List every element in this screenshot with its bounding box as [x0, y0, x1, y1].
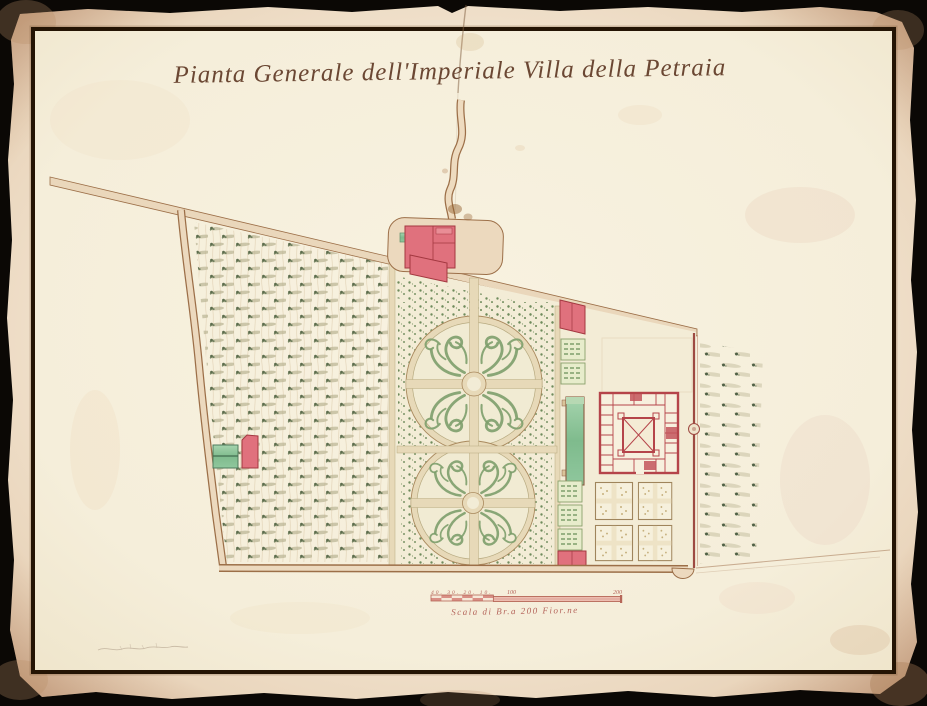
east-grove-trees: [700, 342, 763, 564]
orchard-trees: [194, 222, 388, 562]
garden-building-north: [560, 300, 585, 334]
villa-entrance-gap: [636, 470, 644, 474]
garden-plot: [558, 529, 582, 550]
villa-petraia-plan: Pianta Generale dell'Imperiale Villa del…: [0, 0, 927, 706]
scale-mid-label: 100: [507, 590, 516, 596]
orchard-field: [194, 222, 388, 562]
garden-plot: [561, 339, 585, 360]
garden-plot: [561, 363, 585, 384]
garden-plot: [558, 505, 582, 526]
scanned-map-photo: Pianta Generale dell'Imperiale Villa del…: [0, 0, 927, 706]
farm-building: [242, 435, 258, 468]
villa-plan: [600, 393, 678, 474]
scale-checker-segment: [431, 595, 493, 601]
garden-plot: [558, 481, 582, 502]
west-garden-walk: [389, 262, 395, 568]
